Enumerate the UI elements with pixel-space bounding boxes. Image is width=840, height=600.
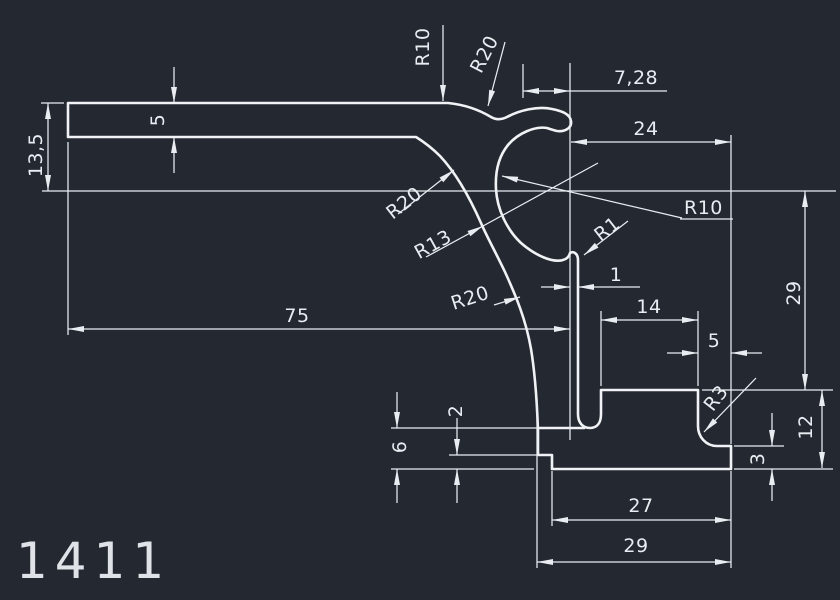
dim-label-7-28: 7,28 (614, 67, 658, 89)
radius-label-r10-bulb: R10 (684, 197, 723, 219)
radius-label-r1: R1 (590, 213, 624, 247)
radius-bulb: R10 (502, 176, 733, 219)
dim-label-27: 27 (628, 495, 653, 517)
dimension-overall-length: 75 (68, 305, 570, 329)
cad-drawing-view: 13,5 5 75 7,28 24 29 12 3 14 5 (0, 0, 840, 600)
dim-label-3: 3 (747, 453, 769, 466)
dim-label-24: 24 (633, 118, 658, 140)
profile-outline-path (68, 103, 731, 469)
dim-label-29-right: 29 (783, 280, 805, 305)
radius-top-curve: R20 (466, 32, 505, 106)
dimension-bottom-width: 29 (537, 535, 731, 562)
radius-lower-curve: R20 (448, 282, 520, 315)
radius-label-r20-lower: R20 (448, 282, 492, 315)
dimension-foot-top-width: 5 (667, 330, 762, 353)
radius-foot-fillet: R3 (700, 378, 756, 432)
dim-label-2: 2 (445, 405, 467, 418)
profile-outline (68, 103, 731, 469)
radius-upper-curve: R20 (382, 170, 454, 224)
radius-label-r10-saddle: R10 (412, 28, 434, 67)
radius-label-r13: R13 (411, 226, 456, 264)
dimension-right-height: 29 (783, 191, 805, 390)
dim-label-5-foot: 5 (708, 330, 721, 352)
part-number: 1411 (16, 532, 171, 590)
dimension-overall-height: 13,5 (25, 103, 48, 191)
dimension-bottom-inner-width: 27 (552, 495, 731, 520)
dimension-foot-plate-thickness: 3 (747, 413, 772, 501)
radius-label-r20-upper: R20 (382, 183, 426, 224)
dimension-step-plate-thickness: 2 (445, 405, 467, 503)
dimension-hook-offset: 7,28 (523, 67, 667, 91)
dimension-top-width: 24 (571, 118, 731, 142)
dimension-step-height: 6 (389, 392, 411, 503)
dim-label-14: 14 (636, 296, 661, 318)
dim-label-13-5: 13,5 (25, 133, 47, 177)
technical-drawing-svg: 13,5 5 75 7,28 24 29 12 3 14 5 (0, 0, 840, 600)
dim-label-1: 1 (610, 264, 623, 286)
radius-leg-fillet: R1 (584, 213, 628, 255)
radius-label-r3: R3 (700, 381, 734, 415)
dimension-flange-thickness: 5 (147, 67, 174, 173)
extension-lines (41, 63, 836, 568)
radius-saddle: R10 (412, 25, 443, 101)
dim-label-29-bottom: 29 (623, 535, 648, 557)
dimension-slot-gap: 1 (541, 264, 640, 287)
dimension-shelf-width: 14 (601, 296, 698, 320)
dim-label-6: 6 (389, 441, 411, 454)
dim-label-75: 75 (284, 305, 309, 327)
dim-label-12: 12 (795, 414, 817, 439)
dimension-foot-height: 12 (795, 390, 822, 468)
dim-label-5-flange: 5 (147, 114, 169, 127)
